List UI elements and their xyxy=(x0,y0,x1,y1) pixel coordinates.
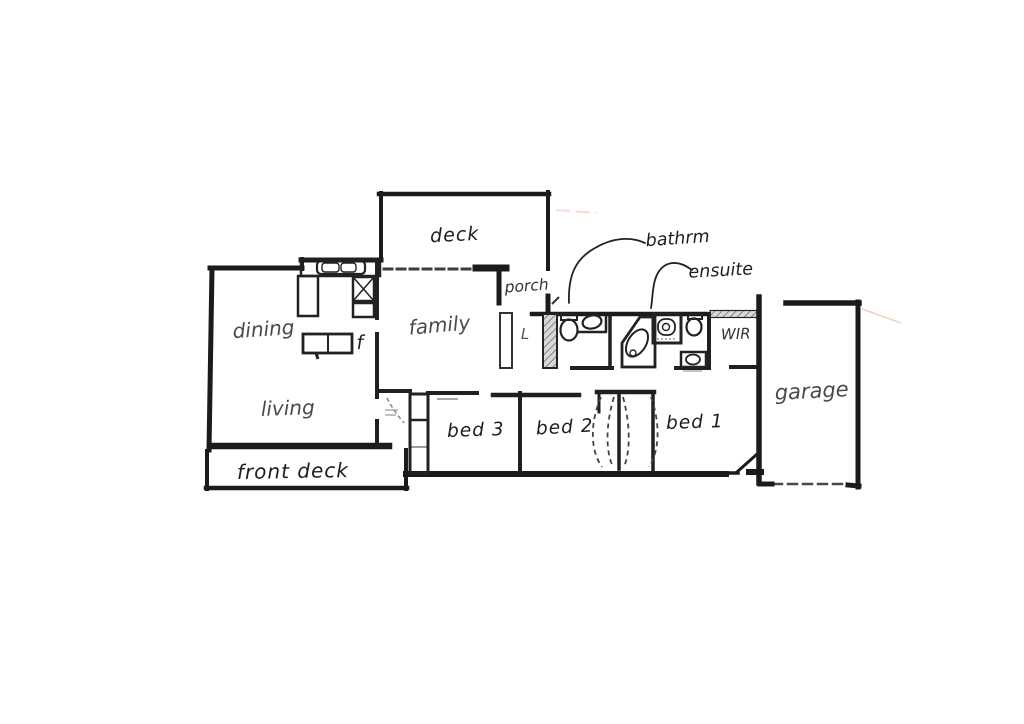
room-label-deck: deck xyxy=(430,223,480,248)
hall-bathroom-wall xyxy=(543,314,557,368)
room-label-garage: garage xyxy=(774,377,849,405)
room-label-living: living xyxy=(260,395,315,421)
room-label-porch: porch xyxy=(503,275,549,296)
ensuite-fixtures xyxy=(621,314,706,371)
kitchen-sink-icon xyxy=(317,261,365,274)
floor-plan-page: deck porch bathrm ensuite WIR garage din… xyxy=(0,0,1024,724)
island-bench-icon xyxy=(303,334,352,359)
ensuite-toilet-icon xyxy=(681,352,706,371)
linen-closet xyxy=(500,313,512,368)
room-label-bed3: bed 3 xyxy=(447,419,505,442)
bathrm-leader-line xyxy=(569,239,645,303)
annotation-label-bathroom: bathrm xyxy=(645,227,710,251)
room-label-front-deck: front deck xyxy=(237,458,350,484)
bathroom-fixtures xyxy=(561,314,608,341)
ensuite-leader-line xyxy=(651,263,692,308)
closet-door-arcs xyxy=(593,397,658,467)
ensuite-basin-icon xyxy=(687,314,703,336)
linen-closet-label: L xyxy=(521,325,529,343)
vanity-icon xyxy=(653,314,681,343)
floor-plan-sketch: deck porch bathrm ensuite WIR garage din… xyxy=(0,0,1024,724)
fridge-label: f xyxy=(356,332,367,354)
basin-icon xyxy=(578,314,607,332)
room-label-wir: WIR xyxy=(721,324,751,343)
annotation-label-ensuite: ensuite xyxy=(688,259,754,282)
bath-icon xyxy=(621,317,655,367)
bed3-closet xyxy=(410,394,428,473)
pantry-icon xyxy=(353,277,374,317)
room-label-bed1: bed 1 xyxy=(666,411,724,434)
room-label-bed2: bed 2 xyxy=(535,416,594,440)
toilet-icon xyxy=(561,314,578,341)
room-label-dining: dining xyxy=(232,315,295,343)
kitchen-bench xyxy=(298,259,380,359)
room-label-family: family xyxy=(408,310,473,339)
